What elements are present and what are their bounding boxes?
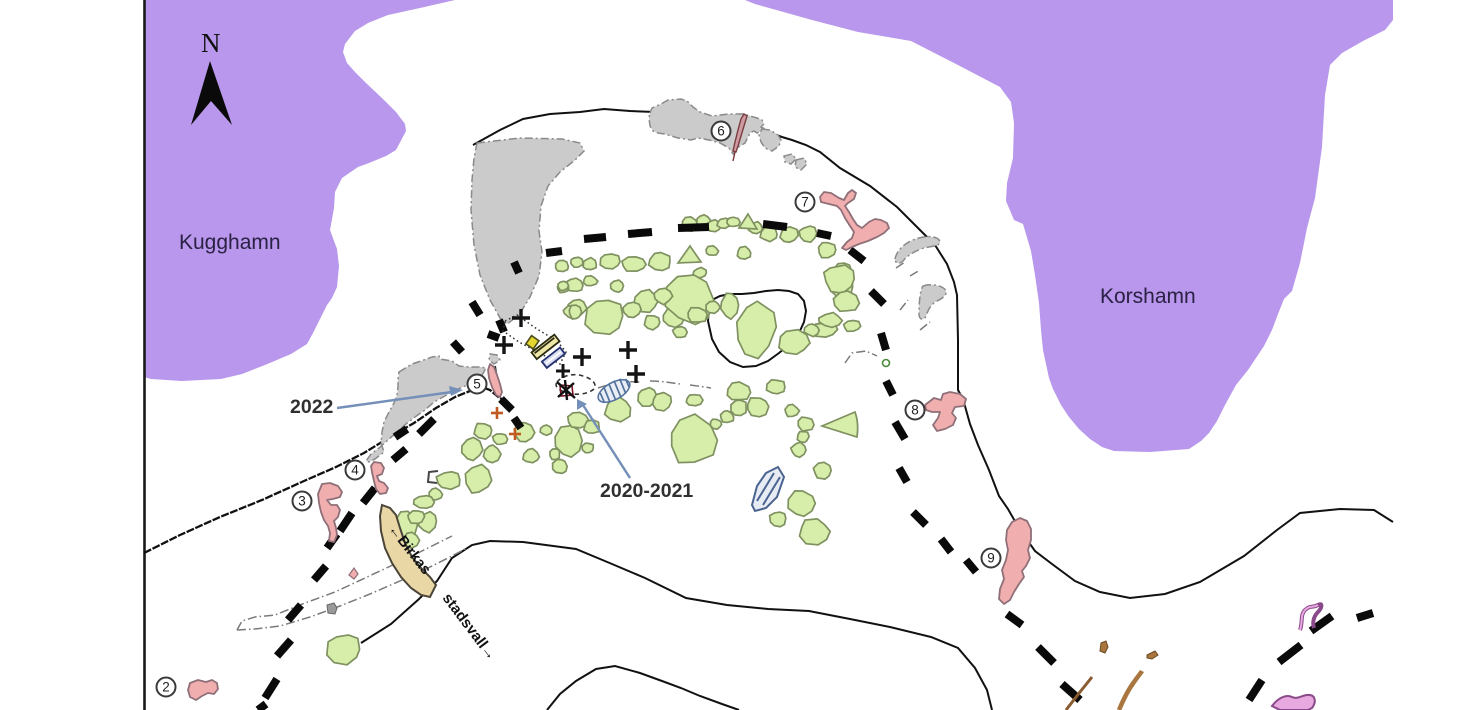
svg-text:Kugghamn: Kugghamn bbox=[179, 231, 281, 254]
svg-text:8: 8 bbox=[911, 403, 919, 418]
svg-text:5: 5 bbox=[473, 377, 481, 392]
svg-text:6: 6 bbox=[717, 124, 725, 139]
svg-text:2020-2021: 2020-2021 bbox=[600, 480, 693, 502]
svg-text:Korshamn: Korshamn bbox=[1100, 285, 1196, 308]
svg-text:7: 7 bbox=[801, 195, 809, 210]
svg-text:N: N bbox=[201, 28, 221, 58]
svg-text:2022: 2022 bbox=[290, 396, 334, 418]
svg-text:2: 2 bbox=[162, 680, 170, 695]
svg-text:4: 4 bbox=[351, 463, 359, 478]
svg-text:3: 3 bbox=[298, 494, 306, 509]
svg-text:9: 9 bbox=[987, 551, 995, 566]
